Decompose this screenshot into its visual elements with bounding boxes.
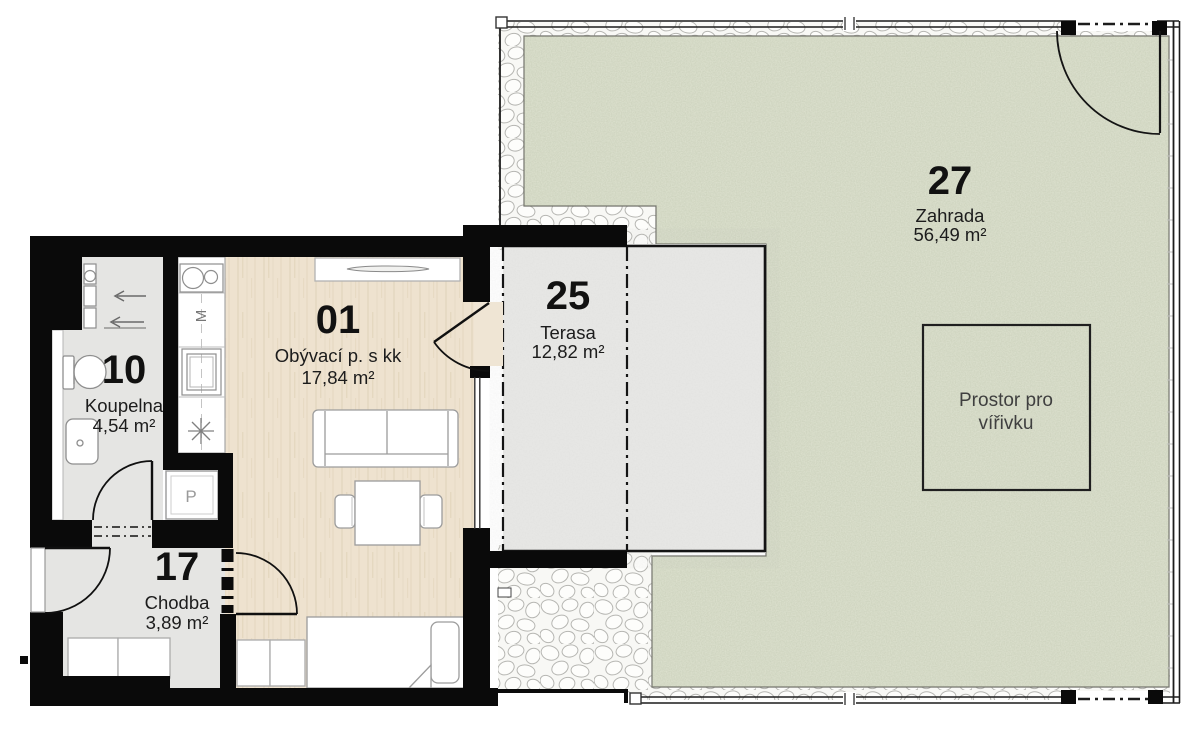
hot-tub-label-line1: Prostor pro: [959, 390, 1053, 411]
room-number: 10: [102, 348, 147, 392]
room-area: 17,84 m²: [301, 367, 374, 388]
bed: [307, 617, 464, 688]
floor-plan-canvas: M P: [0, 0, 1200, 730]
outdoor-tap-icon: [498, 588, 511, 597]
entry-door-jamb: [31, 548, 45, 612]
room-name: Obývací p. s kk: [275, 345, 402, 366]
gate-post: [1061, 21, 1076, 35]
terrace-area: [498, 244, 766, 597]
wardrobe: [237, 640, 270, 686]
kitchen-sink-icon: [180, 264, 223, 292]
wardrobe: [68, 638, 118, 678]
room-name: Chodba: [145, 592, 211, 613]
svg-text:M: M: [193, 310, 210, 323]
toilet-icon: [63, 356, 106, 390]
table-top: [355, 481, 420, 545]
room-number: 01: [316, 298, 361, 342]
floor-plan-drawing: M P: [0, 0, 1200, 730]
room-number: 25: [546, 274, 591, 318]
tv-icon: [347, 266, 429, 272]
chair: [420, 495, 442, 528]
gate-post: [1061, 690, 1076, 704]
fence-post: [630, 693, 641, 704]
kitchenette: M: [178, 257, 225, 453]
wardrobe: [270, 640, 305, 686]
wall-niche: [52, 330, 63, 520]
room-number: 17: [155, 545, 200, 589]
washing-machine-icon: P: [166, 471, 218, 519]
sofa: [313, 410, 458, 467]
svg-text:P: P: [185, 487, 196, 506]
wardrobe: [118, 638, 170, 678]
room-area: 3,89 m²: [146, 612, 209, 633]
room-area: 4,54 m²: [93, 415, 156, 436]
room-area: 56,49 m²: [913, 224, 986, 245]
hot-tub-label-line2: vířivku: [979, 413, 1034, 434]
room-name: Terasa: [540, 322, 596, 343]
tv-shelf: [315, 258, 460, 281]
room-area: 12,82 m²: [531, 341, 604, 362]
room-number: 27: [928, 159, 973, 203]
dishwasher-icon: M: [193, 310, 210, 323]
pillow: [431, 622, 459, 683]
fence-post: [496, 17, 507, 28]
room-name: Koupelna: [85, 395, 164, 416]
shower-icon: [84, 264, 96, 328]
room-name: Zahrada: [916, 205, 986, 226]
gate-post: [1148, 690, 1163, 704]
